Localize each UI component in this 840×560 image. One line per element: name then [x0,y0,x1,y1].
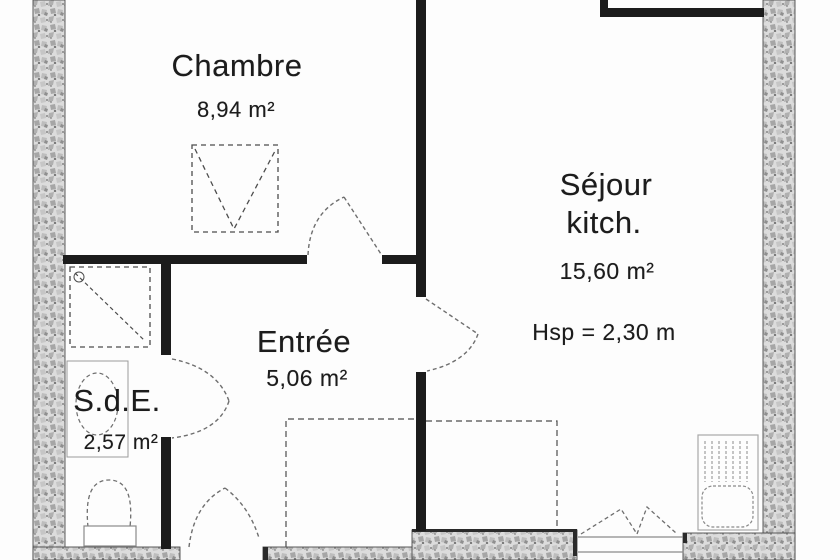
window-symbol [578,507,683,552]
room-label-chambre: Chambre [172,50,303,81]
floor-plan: Chambre 8,94 m² Séjour kitch. 15,60 m² H… [0,0,840,560]
wall-bottom-sde [33,547,180,560]
room-area-sde: 2,57 m² [84,432,159,453]
wardrobe-symbol [192,145,278,232]
door-swing-sejour [426,299,478,371]
room-area-entree: 5,06 m² [266,367,347,390]
wall-sde-right-upper [161,255,171,355]
door-swing-sde [172,359,229,438]
wall-bottom-sejour [412,530,577,560]
interior-walls [63,0,764,549]
room-area-sejour: 15,60 m² [560,260,655,283]
wall-left [33,0,65,560]
wall-top-right-stub [600,0,608,14]
room-label-sejour: Séjour [560,169,653,200]
room-label-sejour-kitch: kitch. [566,207,641,238]
door-swing-chambre [308,197,381,255]
room-label-sde: S.d.E. [73,385,160,416]
shower-symbol [70,267,150,347]
kitchen-sink-symbol [698,435,758,530]
room-label-entree: Entrée [257,326,351,357]
door-swing-entry [189,488,259,547]
room-area-chambre: 8,94 m² [197,99,275,121]
wall-sde-right-lower [161,437,171,549]
floor-plan-drawing [0,0,840,560]
wall-chambre-bottom [63,255,307,264]
toilet-symbol [84,480,136,546]
wall-bottom-entree [263,547,416,560]
wall-top-right-horizontal [600,8,764,17]
exterior-walls [33,0,795,560]
ceiling-height-label: Hsp = 2,30 m [532,321,675,344]
wall-bottom-right [683,533,795,560]
wall-right [763,0,795,560]
wall-sejour-left-upper [416,0,426,297]
wall-sejour-left-lower [416,372,426,531]
